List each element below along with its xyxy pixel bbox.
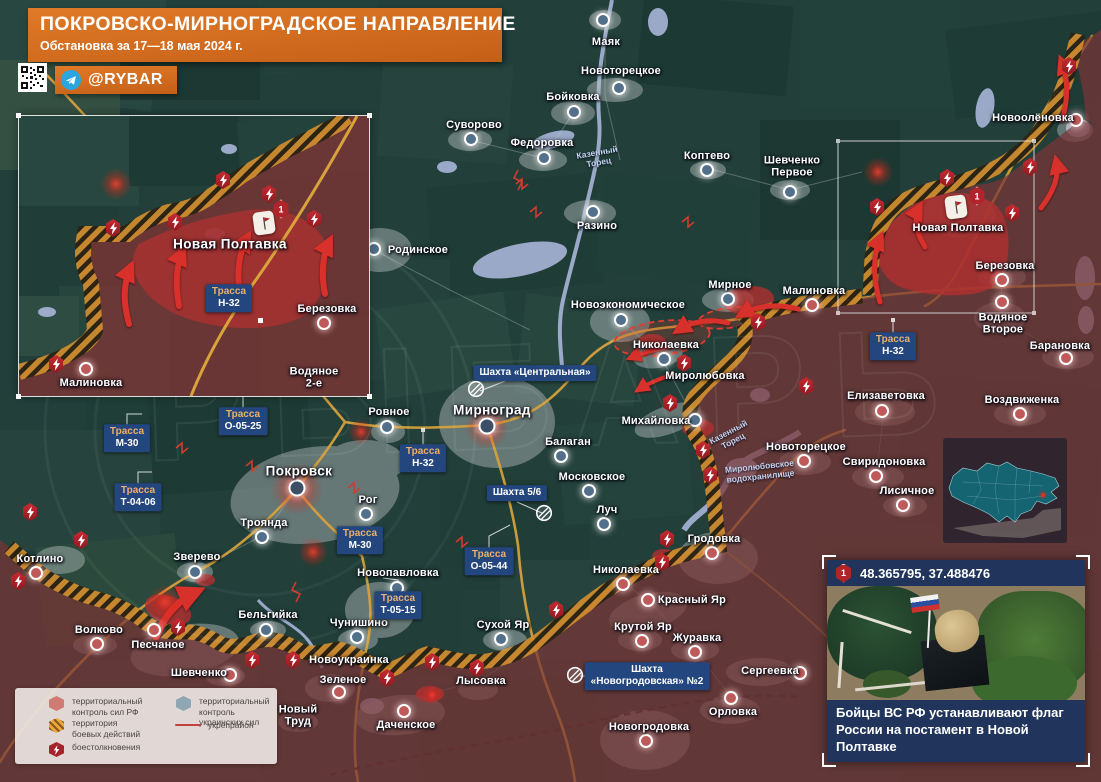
qr-code [18, 63, 47, 92]
ua-zone-icon [175, 696, 192, 711]
water-label: Миролюбовское водохранилище [725, 459, 796, 486]
road-label-prefix: Трасса [381, 593, 415, 605]
battle-icon [167, 213, 183, 231]
mine-icon [536, 505, 553, 522]
battle-icon [659, 530, 675, 548]
town-label: Гродовка [688, 533, 741, 545]
town-label: Бойковка [546, 91, 599, 103]
town-marker [614, 313, 628, 327]
water-label: Казенный Торец [708, 419, 754, 456]
rybar-badge[interactable]: @RYBAR [55, 66, 177, 94]
frame-corner-icon [822, 555, 836, 569]
photo-inset: 1 48.365795, 37.488476 Бойцы ВС РФ устан… [827, 560, 1085, 762]
legend-item: территориальный контроль сил РФ [48, 696, 142, 717]
road-label-prefix: Трасса [110, 426, 144, 438]
legend-label: территориальный контроль сил РФ [72, 696, 142, 717]
town-label: Зеленое [320, 674, 367, 686]
road-label-value: Шахта «Центральная» [479, 367, 590, 379]
town-label: Котлино [17, 553, 64, 565]
town-marker [995, 273, 1009, 287]
photo-caption: Бойцы ВС РФ устанавливают флаг России на… [827, 700, 1085, 761]
town-marker [616, 577, 630, 591]
photo-russian-flag [910, 594, 940, 613]
battle-icon [379, 669, 395, 687]
combat-zone-icon [48, 718, 65, 733]
town-marker [350, 630, 364, 644]
town-label: Новоторецкое [766, 441, 846, 453]
town-label: Орловка [709, 706, 757, 718]
town-label: Лысовка [456, 675, 506, 687]
battle-icon [285, 651, 301, 669]
fortification-line-icon [175, 724, 201, 726]
town-marker [875, 404, 889, 418]
town-label: Рог [359, 494, 378, 506]
inset-corner-tick [367, 113, 372, 118]
town-marker [90, 637, 104, 651]
inset-corner-tick [367, 394, 372, 399]
town-label: Родинское [388, 244, 448, 256]
town-label: Красный Яр [658, 594, 726, 606]
town-label: Водяное 2-е [287, 366, 342, 391]
battle-icon [869, 198, 885, 216]
battle-icon [1004, 204, 1020, 222]
town-label: Новая Полтавка [173, 236, 287, 251]
inset-overlay: Новая ПолтавкаБерезовкаВодяное 2-еМалино… [19, 116, 369, 396]
road-label-chip: ТрассаН-32 [206, 284, 252, 312]
road-label-value: Шахта 5/6 [493, 487, 541, 499]
town-label: Миролюбовка [665, 370, 744, 382]
road-label-chip: Шахта «Новогродовская» №2 [585, 662, 710, 690]
town-label: Покровск [266, 463, 333, 478]
legend-panel: территориальный контроль сил РФтерритори… [15, 688, 277, 764]
photo-image [827, 586, 1085, 700]
battle-icon [22, 503, 38, 521]
town-label: Барановка [1030, 340, 1090, 352]
town-label: Троянда [240, 517, 287, 529]
town-label: Песчаное [131, 639, 184, 651]
town-marker [657, 352, 671, 366]
town-label: Зверево [173, 551, 220, 563]
town-label: Ровное [368, 406, 409, 418]
town-marker [596, 13, 610, 27]
channel-name: @RYBAR [88, 71, 163, 89]
town-marker [705, 546, 719, 560]
town-label: Шевченко [171, 667, 227, 679]
title-banner: ПОКРОВСКО-МИРНОГРАДСКОЕ НАПРАВЛЕНИЕ Обст… [28, 8, 502, 62]
town-marker [721, 292, 735, 306]
battle-icon [73, 531, 89, 549]
battle-icon [750, 313, 766, 331]
road-label-value: Т-05-15 [380, 605, 415, 617]
town-marker [805, 298, 819, 312]
road-label-chip: ТрассаМ-30 [337, 526, 383, 554]
town-label: Новоукраинка [309, 654, 389, 666]
town-marker [289, 480, 306, 497]
town-marker [597, 517, 611, 531]
road-label-value: М-30 [116, 438, 139, 450]
town-label: Коптево [684, 150, 730, 162]
town-marker [567, 105, 581, 119]
town-label: Новоэкономическое [571, 299, 685, 311]
town-label: Водяное Второе [979, 312, 1028, 337]
road-label-chip: Шахта 5/6 [487, 485, 547, 501]
town-marker [612, 81, 626, 95]
town-label: Березовка [976, 260, 1035, 272]
road-label-chip: ТрассаН-32 [870, 332, 916, 360]
road-label-value: О-05-25 [225, 421, 262, 433]
town-marker [479, 418, 496, 435]
mine-icon [468, 381, 485, 398]
battle-icon [702, 466, 718, 484]
town-marker [397, 704, 411, 718]
rf-zone-icon [48, 696, 65, 711]
town-label: Маяк [592, 36, 620, 48]
battle-icon [1061, 57, 1077, 75]
battle-icon [261, 185, 277, 203]
road-label-chip: ТрассаТ-05-15 [374, 591, 421, 619]
road-label-value: Н-32 [412, 458, 434, 470]
inset-map: Новая ПолтавкаБерезовкаВодяное 2-еМалино… [18, 115, 370, 397]
road-label-value: М-30 [349, 540, 372, 552]
town-label: Елизаветовка [847, 390, 925, 402]
town-label: Шевченко Первое [764, 155, 820, 180]
town-marker [317, 316, 331, 330]
road-label-value: О-05-44 [471, 561, 508, 573]
battle-icon [424, 653, 440, 671]
ukraine-minimap [943, 438, 1067, 548]
road-label-chip: ТрассаТ-04-06 [114, 483, 161, 511]
legend-item: территория боевых действий [48, 718, 140, 739]
battle-icon [662, 394, 678, 412]
town-marker [494, 632, 508, 646]
photo-number-badge: 1 [835, 564, 852, 583]
road-label-prefix: Трасса [343, 528, 377, 540]
town-label: Малиновка [60, 377, 123, 389]
town-marker [635, 634, 649, 648]
town-marker [700, 163, 714, 177]
battle-icon [215, 171, 231, 189]
town-label: Новогродовка [609, 721, 689, 733]
battle-icon [244, 651, 260, 669]
town-marker [586, 205, 600, 219]
town-marker [29, 566, 43, 580]
water-label: Казенный Торец [576, 145, 620, 171]
town-marker [359, 507, 373, 521]
town-label: Волково [75, 624, 123, 636]
town-label: Березовка [298, 303, 357, 315]
town-marker [464, 132, 478, 146]
battle-icon [939, 169, 955, 187]
flag-marker [944, 194, 968, 220]
town-marker [641, 593, 655, 607]
road-label-value: Н-32 [882, 346, 904, 358]
town-label: Малиновка [783, 285, 846, 297]
page-title: ПОКРОВСКО-МИРНОГРАДСКОЕ НАПРАВЛЕНИЕ [40, 13, 492, 36]
town-label: Михайловка [622, 415, 691, 427]
road-label-prefix: Трасса [226, 409, 260, 421]
town-label: Новоолёновка [992, 112, 1074, 124]
legend-item: укрепрайон [175, 720, 254, 731]
town-marker [639, 734, 653, 748]
frame-corner-icon [1076, 753, 1090, 767]
town-marker [1013, 407, 1027, 421]
photo-header: 1 48.365795, 37.488476 [827, 560, 1085, 586]
road-label-chip: Шахта «Центральная» [473, 365, 596, 381]
town-label: Николаевка [593, 564, 659, 576]
town-marker [255, 530, 269, 544]
town-label: Новоторецкое [581, 65, 661, 77]
town-label: Федоровка [511, 137, 574, 149]
mine-icon [567, 667, 584, 684]
town-label: Крутой Яр [614, 621, 672, 633]
flag-number-badge: 1 [273, 200, 290, 219]
telegram-icon [61, 70, 81, 90]
town-label: Луч [597, 504, 618, 516]
frame-corner-icon [822, 753, 836, 767]
town-marker [332, 685, 346, 699]
battle-icon [1022, 158, 1038, 176]
page-subtitle: Обстановка за 17—18 мая 2024 г. [40, 39, 492, 53]
town-marker [537, 151, 551, 165]
town-label: Журавка [673, 632, 722, 644]
town-label: Новопавловка [357, 567, 439, 579]
town-label: Мирное [708, 279, 751, 291]
road-label-prefix: Трасса [876, 334, 910, 346]
town-label: Сухой Яр [477, 619, 530, 631]
town-marker [554, 449, 568, 463]
town-marker [724, 691, 738, 705]
flag-number-badge: 1 [969, 187, 986, 206]
battle-icon [548, 601, 564, 619]
battle-icon [170, 618, 186, 636]
town-label: Лисичное [880, 485, 935, 497]
photo-coordinates: 48.365795, 37.488476 [860, 566, 990, 581]
frame-corner-icon [1076, 555, 1090, 569]
town-marker [582, 484, 596, 498]
legend-label: территория боевых действий [72, 718, 140, 739]
town-label: Балаган [545, 436, 591, 448]
town-label: Воздвиженка [985, 394, 1060, 406]
road-label-value: Т-04-06 [120, 497, 155, 509]
road-label-chip: ТрассаО-05-25 [219, 407, 268, 435]
town-label: Даченское [377, 719, 436, 731]
road-label-value: Шахта «Новогродовская» №2 [591, 664, 704, 688]
town-marker [797, 454, 811, 468]
town-marker [79, 362, 93, 376]
inset-corner-tick [16, 113, 21, 118]
road-label-prefix: Трасса [121, 485, 155, 497]
battle-icon [798, 377, 814, 395]
town-marker [188, 565, 202, 579]
town-label: Новый Труд [279, 704, 318, 729]
town-marker [869, 469, 883, 483]
town-marker [995, 295, 1009, 309]
town-label: Бельгийка [238, 609, 297, 621]
town-marker [380, 420, 394, 434]
road-label-chip: ТрассаМ-30 [104, 424, 150, 452]
battle-icon [48, 355, 64, 373]
town-label: Свиридоновка [843, 456, 926, 468]
legend-label: боестолкновения [72, 742, 140, 753]
flag-marker [252, 210, 276, 236]
battle-zone-icon [48, 742, 65, 757]
road-label-prefix: Трасса [212, 286, 246, 298]
town-marker [259, 623, 273, 637]
minimap-location-dot [1041, 493, 1045, 497]
town-marker [688, 645, 702, 659]
road-label-prefix: Трасса [406, 446, 440, 458]
inset-corner-tick [16, 394, 21, 399]
road-label-prefix: Трасса [472, 549, 506, 561]
town-label: Мирноград [453, 402, 531, 417]
town-label: Николаевка [633, 339, 699, 351]
legend-label: укрепрайон [208, 720, 254, 731]
town-marker [1059, 351, 1073, 365]
battle-icon [105, 219, 121, 237]
town-label: Московское [559, 471, 626, 483]
town-label: Разино [577, 220, 617, 232]
battle-icon [10, 572, 26, 590]
legend-item: боестолкновения [48, 742, 140, 757]
battle-icon [695, 441, 711, 459]
town-marker [147, 623, 161, 637]
road-label-value: Н-32 [218, 298, 240, 310]
road-label-chip: ТрассаО-05-44 [465, 547, 514, 575]
town-label: Новая Полтавка [913, 222, 1004, 234]
town-label: Сергеевка [741, 665, 799, 677]
battle-icon [306, 210, 322, 228]
town-marker [783, 185, 797, 199]
road-label-chip: ТрассаН-32 [400, 444, 446, 472]
town-marker [896, 498, 910, 512]
town-label: Суворово [446, 119, 502, 131]
